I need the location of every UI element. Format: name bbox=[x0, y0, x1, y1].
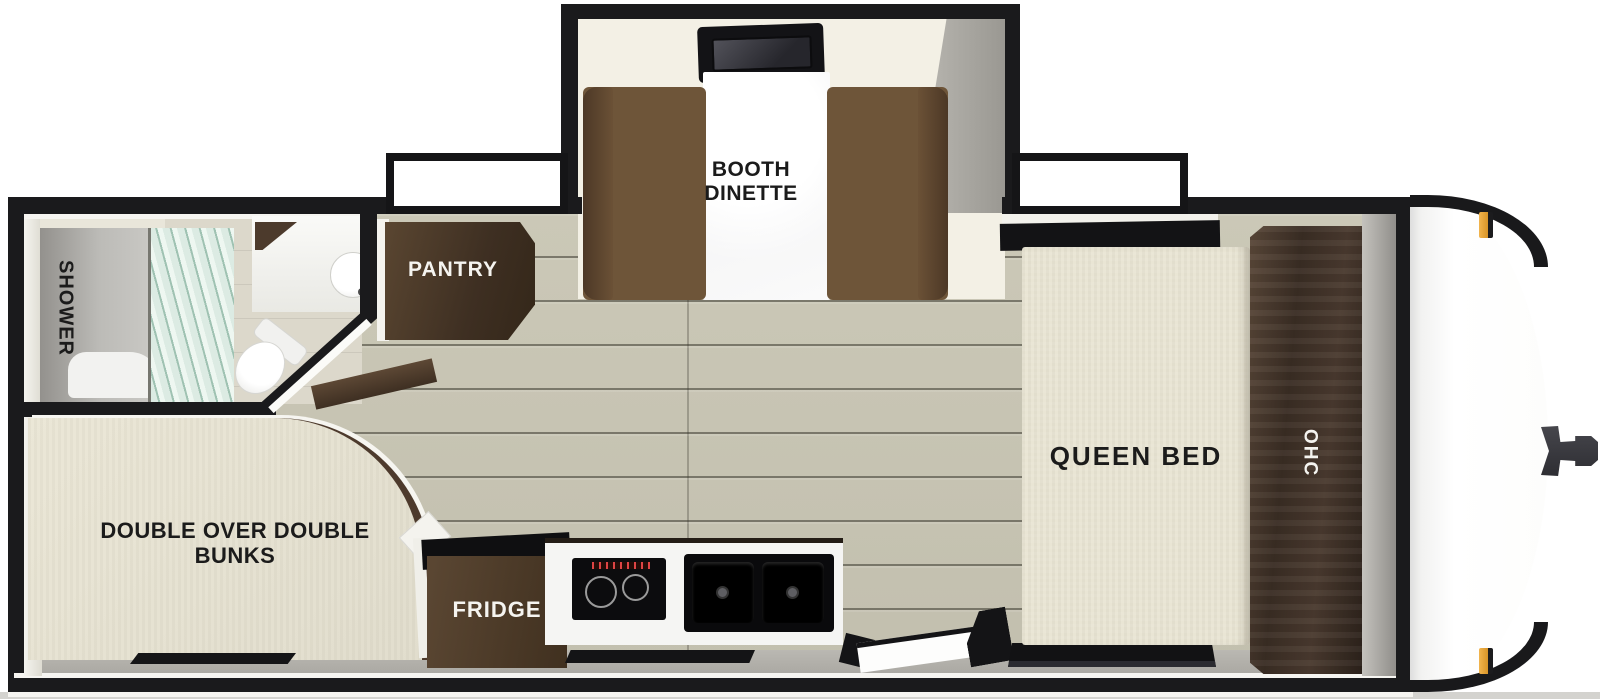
pantry-label: PANTRY bbox=[385, 258, 521, 281]
cooktop-controls bbox=[592, 562, 650, 569]
ground-shadow bbox=[0, 692, 1600, 699]
bunks-label: DOUBLE OVER DOUBLE BUNKS bbox=[75, 518, 395, 569]
marker-light-bottom-icon bbox=[1479, 648, 1493, 674]
queen-bed-label: QUEEN BED bbox=[1022, 442, 1250, 472]
ohc-label: OHC bbox=[1286, 418, 1332, 488]
rv-floorplan: SHOWER DOUBLE OVER DOUBLE BUNKS PANTRY bbox=[0, 0, 1600, 699]
front-cap-shell bbox=[1410, 197, 1548, 691]
bathroom-wall-right bbox=[360, 214, 377, 318]
dinette-bench-right-back bbox=[918, 87, 948, 300]
bedroom-foot-window bbox=[1008, 643, 1216, 667]
bedroom-head-window bbox=[1012, 153, 1188, 214]
dinette-bench-left-back bbox=[583, 87, 613, 300]
shower-label: SHOWER bbox=[40, 258, 90, 358]
bathroom-wall-bottom bbox=[24, 402, 276, 417]
bunk-window bbox=[130, 653, 296, 664]
bottom-wall-trim bbox=[14, 673, 1407, 678]
front-wall-inner-face bbox=[1362, 214, 1398, 676]
sink-drain-right bbox=[786, 586, 799, 599]
shower-seat bbox=[68, 352, 160, 398]
burner-right-icon bbox=[622, 574, 649, 601]
hitch-coupler-icon bbox=[1541, 426, 1598, 476]
sink-drain-left bbox=[716, 586, 729, 599]
marker-light-top-icon bbox=[1479, 212, 1493, 238]
burner-left-icon bbox=[585, 576, 617, 608]
kitchen-window bbox=[565, 650, 755, 663]
skylight-pane bbox=[711, 35, 812, 71]
galley-window bbox=[386, 153, 568, 214]
booth-dinette-label: BOOTH DINETTE bbox=[676, 158, 826, 206]
